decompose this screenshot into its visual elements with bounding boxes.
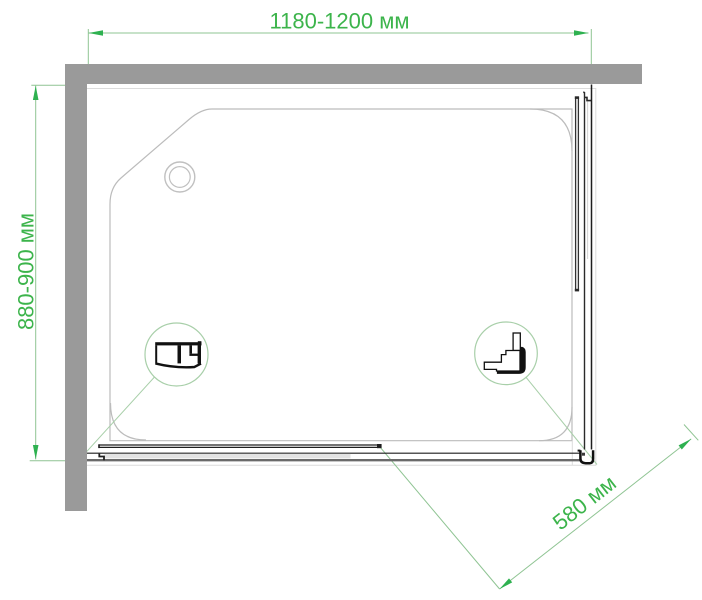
svg-text:880-900 мм: 880-900 мм [13,213,38,330]
svg-text:1180-1200 мм: 1180-1200 мм [270,9,410,34]
